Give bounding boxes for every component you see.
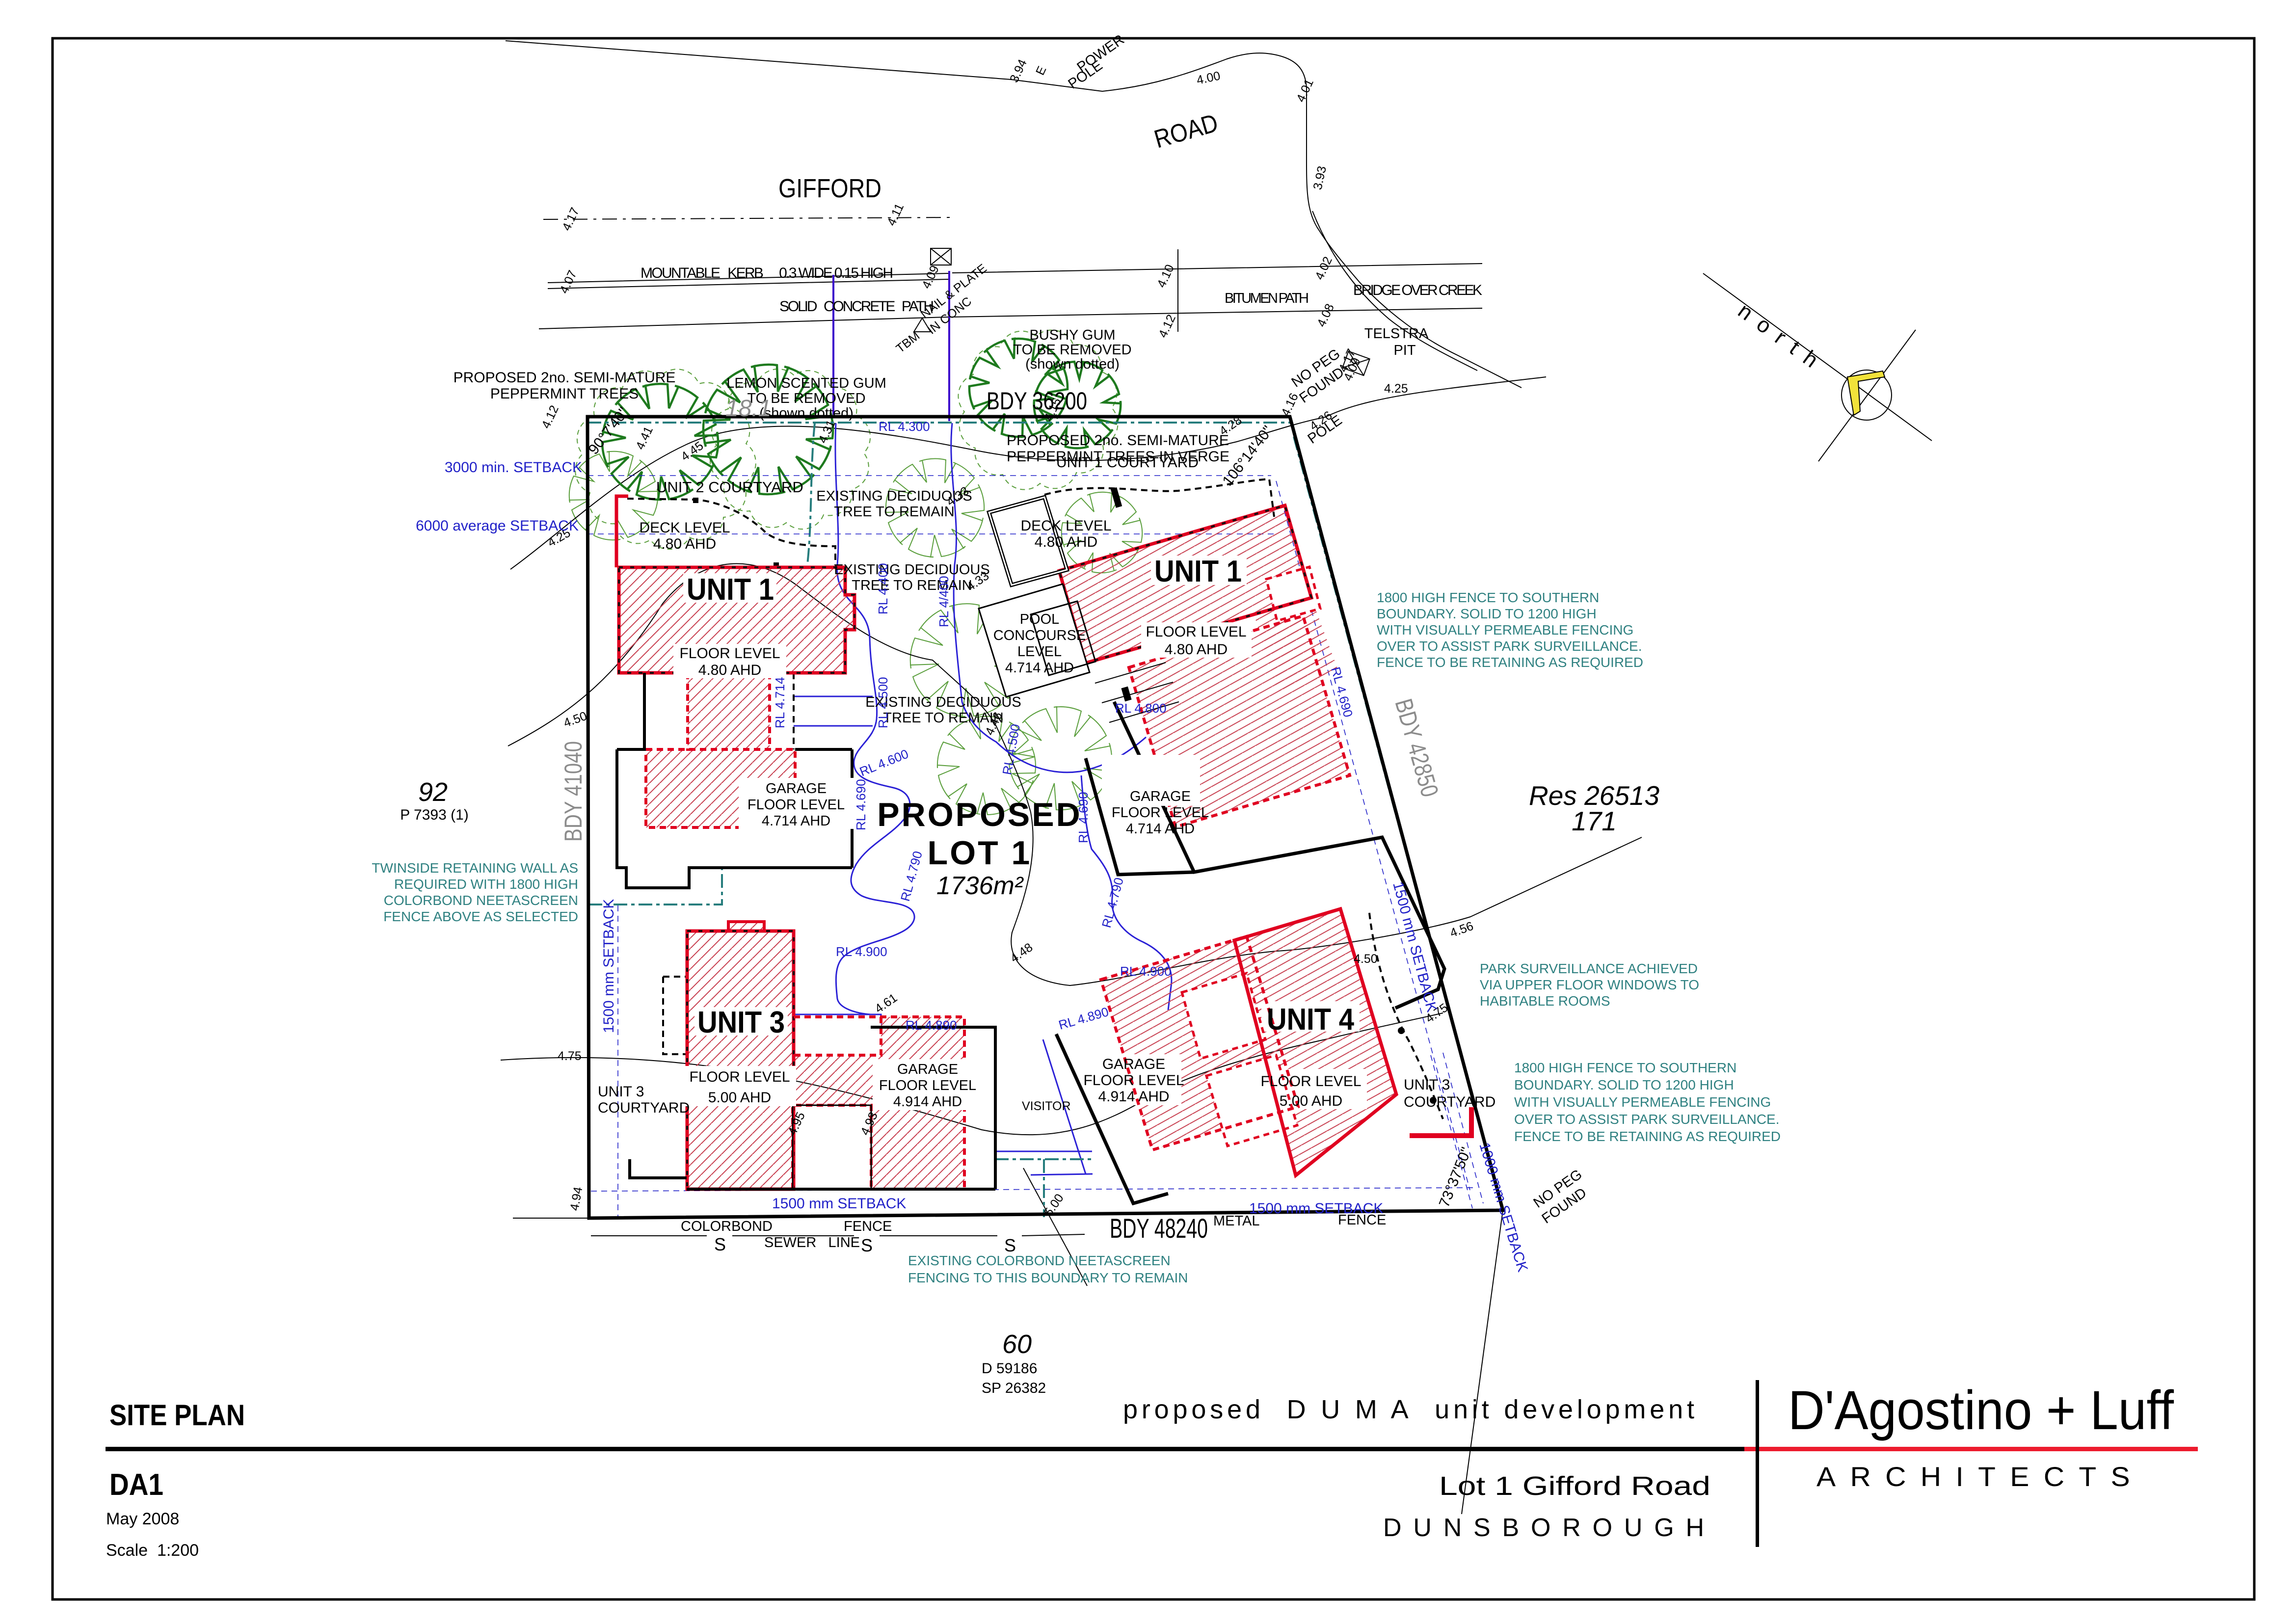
svg-text:PARK SURVEILLANCE ACHIEVED: PARK SURVEILLANCE ACHIEVED	[1480, 961, 1698, 976]
svg-text:BITUMEN PATH: BITUMEN PATH	[1225, 291, 1309, 306]
svg-text:4.25: 4.25	[1384, 382, 1408, 396]
svg-text:5.00 AHD: 5.00 AHD	[1280, 1093, 1342, 1109]
svg-text:4.714 AHD: 4.714 AHD	[1126, 821, 1195, 837]
svg-text:3000 min. SETBACK: 3000 min. SETBACK	[445, 459, 582, 476]
svg-text:RL 4.900: RL 4.900	[836, 944, 887, 959]
svg-text:RL 4.500: RL 4.500	[876, 677, 890, 728]
svg-text:1736m²: 1736m²	[936, 872, 1024, 900]
svg-text:UNIT 3: UNIT 3	[598, 1084, 644, 1100]
svg-text:1800 HIGH FENCE TO SOUTHERN: 1800 HIGH FENCE TO SOUTHERN	[1377, 590, 1599, 605]
svg-text:BRIDGE OVER CREEK: BRIDGE OVER CREEK	[1353, 282, 1482, 298]
svg-text:GIFFORD: GIFFORD	[778, 174, 881, 203]
svg-text:RL 4.300: RL 4.300	[879, 419, 930, 434]
svg-text:1500 mm SETBACK: 1500 mm SETBACK	[601, 899, 617, 1033]
svg-text:171: 171	[1572, 806, 1617, 836]
svg-text:WITH VISUALLY PERMEABLE FENCIN: WITH VISUALLY PERMEABLE FENCING	[1377, 622, 1633, 638]
svg-text:4.80 AHD: 4.80 AHD	[1035, 534, 1097, 550]
svg-text:POOL: POOL	[1020, 612, 1060, 627]
svg-text:OVER TO ASSIST PARK SURVEILLAN: OVER TO ASSIST PARK SURVEILLANCE.	[1514, 1112, 1780, 1127]
svg-text:4.80 AHD: 4.80 AHD	[698, 662, 761, 678]
svg-text:UNIT 3: UNIT 3	[1404, 1077, 1450, 1093]
svg-text:BDY 36200: BDY 36200	[987, 387, 1087, 415]
svg-text:UNIT 1: UNIT 1	[687, 573, 774, 607]
svg-text:PROPOSED 2no. SEMI-MATURE: PROPOSED 2no. SEMI-MATURE	[1007, 432, 1229, 449]
svg-text:RL 4.690: RL 4.690	[854, 779, 868, 830]
svg-text:P 7393 (1): P 7393 (1)	[400, 807, 469, 823]
svg-text:EXISTING COLORBOND NEETASCREEN: EXISTING COLORBOND NEETASCREEN	[908, 1253, 1171, 1268]
svg-text:PIT: PIT	[1393, 343, 1415, 358]
svg-text:RL 4.890: RL 4.890	[906, 1018, 957, 1033]
svg-text:4.914 AHD: 4.914 AHD	[1098, 1089, 1169, 1105]
svg-text:FLOOR LEVEL: FLOOR LEVEL	[748, 797, 845, 813]
svg-text:COURTYARD: COURTYARD	[598, 1100, 690, 1116]
svg-text:GARAGE: GARAGE	[1102, 1056, 1165, 1072]
svg-text:4.714 AHD: 4.714 AHD	[1005, 660, 1074, 676]
svg-text:TREE TO REMAIN: TREE TO REMAIN	[834, 504, 954, 520]
svg-text:DUNSBOROUGH: DUNSBOROUGH	[1383, 1514, 1710, 1542]
svg-text:RL 4.714: RL 4.714	[773, 677, 787, 728]
svg-text:D 59186: D 59186	[982, 1360, 1037, 1377]
svg-text:6000 average SETBACK: 6000 average SETBACK	[416, 518, 579, 534]
svg-text:FLOOR LEVEL: FLOOR LEVEL	[1083, 1072, 1184, 1089]
svg-text:FLOOR LEVEL: FLOOR LEVEL	[879, 1078, 976, 1093]
svg-text:GARAGE: GARAGE	[1130, 789, 1191, 804]
svg-text:DA1: DA1	[109, 1468, 163, 1502]
svg-text:LEVEL: LEVEL	[1017, 644, 1062, 660]
svg-text:UNIT 1: UNIT 1	[1154, 555, 1242, 588]
svg-text:TREE TO REMAIN: TREE TO REMAIN	[883, 710, 1003, 726]
svg-text:COLORBOND: COLORBOND	[681, 1219, 773, 1234]
svg-text:FLOOR LEVEL: FLOOR LEVEL	[679, 645, 780, 662]
svg-text:UNIT 1 COURTYARD: UNIT 1 COURTYARD	[1056, 454, 1199, 471]
svg-text:GARAGE: GARAGE	[897, 1062, 958, 1077]
svg-text:GARAGE: GARAGE	[766, 781, 827, 797]
svg-text:PEPPERMINT TREES: PEPPERMINT TREES	[490, 386, 639, 402]
svg-text:4.714 AHD: 4.714 AHD	[762, 813, 830, 829]
svg-text:FLOOR LEVEL: FLOOR LEVEL	[1146, 624, 1246, 640]
svg-text:4.80 AHD: 4.80 AHD	[1165, 641, 1228, 658]
svg-text:FENCE TO BE RETAINING AS REQUI: FENCE TO BE RETAINING AS REQUIRED	[1377, 655, 1643, 670]
svg-text:WITH VISUALLY PERMEABLE FENCIN: WITH VISUALLY PERMEABLE FENCING	[1514, 1094, 1771, 1110]
svg-text:VIA UPPER FLOOR WINDOWS TO: VIA UPPER FLOOR WINDOWS TO	[1480, 977, 1699, 992]
svg-text:92: 92	[418, 777, 448, 807]
svg-text:60: 60	[1002, 1330, 1032, 1359]
svg-text:FENCE: FENCE	[844, 1219, 892, 1234]
svg-text:4.50: 4.50	[1354, 952, 1378, 966]
svg-text:SP 26382: SP 26382	[982, 1380, 1046, 1396]
svg-text:PROPOSED: PROPOSED	[877, 796, 1082, 833]
svg-text:May 2008: May 2008	[106, 1510, 179, 1528]
svg-text:FENCING TO THIS BOUNDARY TO RE: FENCING TO THIS BOUNDARY TO REMAIN	[908, 1270, 1188, 1285]
svg-text:1800 HIGH FENCE TO SOUTHERN: 1800 HIGH FENCE TO SOUTHERN	[1514, 1060, 1736, 1075]
svg-text:VISITOR: VISITOR	[1022, 1099, 1071, 1113]
svg-text:LOT 1: LOT 1	[928, 834, 1032, 872]
svg-text:HABITABLE ROOMS: HABITABLE ROOMS	[1480, 993, 1610, 1009]
svg-text:FLOOR LEVEL: FLOOR LEVEL	[689, 1069, 790, 1085]
svg-text:TO BE REMOVED: TO BE REMOVED	[1013, 342, 1131, 358]
svg-text:LEMON SCENTED GUM: LEMON SCENTED GUM	[726, 375, 886, 391]
svg-text:DECK LEVEL: DECK LEVEL	[639, 520, 730, 536]
svg-text:TREE TO REMAIN: TREE TO REMAIN	[852, 578, 972, 593]
svg-text:SITE PLAN: SITE PLAN	[109, 1399, 245, 1432]
svg-text:PROPOSED 2no. SEMI-MATURE: PROPOSED 2no. SEMI-MATURE	[454, 370, 676, 386]
svg-text:FLOOR LEVEL: FLOOR LEVEL	[1260, 1073, 1361, 1090]
svg-text:FENCE TO BE RETAINING AS REQUI: FENCE TO BE RETAINING AS REQUIRED	[1514, 1129, 1781, 1144]
svg-text:4.914 AHD: 4.914 AHD	[893, 1094, 962, 1110]
svg-text:MOUNTABLE KERB 0.3 WIDE: MOUNTABLE KERB 0.3 WIDE 0.15 HIGH	[641, 265, 893, 281]
svg-text:BDY 41040: BDY 41040	[560, 741, 587, 842]
svg-text:D'Agostino + Luff: D'Agostino + Luff	[1788, 1380, 2174, 1441]
svg-text:BOUNDARY. SOLID TO 1200 HIGH: BOUNDARY. SOLID TO 1200 HIGH	[1377, 606, 1597, 621]
svg-text:REQUIRED WITH 1800 HIGH: REQUIRED WITH 1800 HIGH	[394, 877, 578, 892]
svg-text:RL 4.800: RL 4.800	[1115, 701, 1167, 716]
svg-text:CONCOURSE: CONCOURSE	[993, 628, 1086, 643]
svg-text:UNIT 3: UNIT 3	[697, 1006, 785, 1039]
svg-text:(shown dotted): (shown dotted)	[1025, 356, 1120, 372]
svg-text:UNIT 4: UNIT 4	[1267, 1003, 1354, 1037]
svg-text:BOUNDARY. SOLID TO 1200 HIGH: BOUNDARY. SOLID TO 1200 HIGH	[1514, 1077, 1734, 1092]
svg-text:DECK LEVEL: DECK LEVEL	[1020, 518, 1111, 534]
svg-text:RL 4.690: RL 4.690	[1076, 792, 1091, 843]
svg-text:FENCE ABOVE AS SELECTED: FENCE ABOVE AS SELECTED	[383, 909, 578, 924]
svg-text:BDY 48240: BDY 48240	[1110, 1213, 1208, 1244]
svg-text:S: S	[861, 1235, 873, 1255]
svg-text:4.80 AHD: 4.80 AHD	[653, 536, 716, 552]
svg-text:ARCHITECTS: ARCHITECTS	[1816, 1461, 2144, 1492]
svg-text:OVER TO ASSIST PARK SURVEILLAN: OVER TO ASSIST PARK SURVEILLANCE.	[1377, 639, 1642, 654]
svg-text:COLORBOND NEETASCREEN: COLORBOND NEETASCREEN	[384, 893, 578, 908]
svg-text:EXISTING DECIDUOUS: EXISTING DECIDUOUS	[834, 562, 989, 578]
svg-text:5.00 AHD: 5.00 AHD	[708, 1090, 771, 1106]
svg-text:RL 4/400: RL 4/400	[936, 576, 951, 627]
svg-text:BUSHY GUM: BUSHY GUM	[1029, 327, 1115, 343]
svg-text:SOLID CONCRETE PATH: SOLID CONCRETE PATH	[779, 298, 934, 315]
svg-text:Scale 1:200: Scale 1:200	[106, 1541, 199, 1560]
svg-text:S: S	[1004, 1235, 1016, 1255]
svg-text:TELSTRA: TELSTRA	[1364, 326, 1429, 342]
svg-text:Lot 1 Gifford Road: Lot 1 Gifford Road	[1439, 1471, 1710, 1501]
svg-text:RL 4.900: RL 4.900	[1120, 964, 1172, 979]
svg-text:TWINSIDE RETAINING WALL AS: TWINSIDE RETAINING WALL AS	[372, 860, 578, 876]
svg-text:UNIT 2 COURTYARD: UNIT 2 COURTYARD	[656, 479, 803, 496]
svg-text:1500 mm SETBACK: 1500 mm SETBACK	[1249, 1200, 1383, 1217]
svg-text:(shown dotted): (shown dotted)	[759, 405, 854, 421]
svg-text:4.75: 4.75	[558, 1049, 582, 1063]
svg-text:FLOOR LEVEL: FLOOR LEVEL	[1112, 805, 1209, 821]
svg-text:RL 4.400: RL 4.400	[876, 563, 890, 614]
svg-text:SEWER LINE: SEWER LINE	[764, 1235, 860, 1251]
svg-text:18.1: 18.1	[725, 396, 771, 422]
svg-text:COURTYARD: COURTYARD	[1404, 1094, 1495, 1110]
svg-text:S: S	[714, 1234, 726, 1254]
svg-text:1500 mm SETBACK: 1500 mm SETBACK	[772, 1196, 906, 1212]
